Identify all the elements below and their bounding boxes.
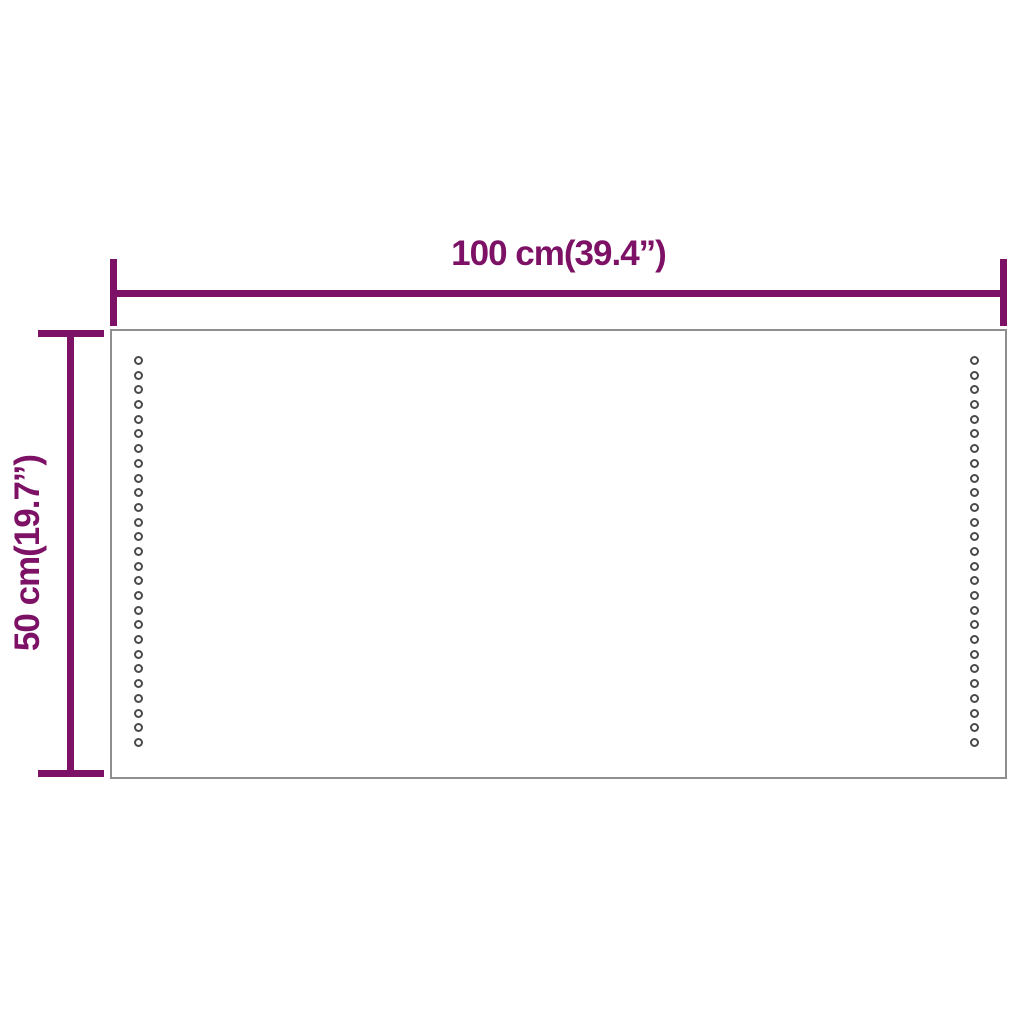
led-dot [970, 415, 979, 424]
led-dot [134, 547, 143, 556]
led-dot [134, 709, 143, 718]
led-dot [970, 635, 979, 644]
led-dot [134, 474, 143, 483]
led-dot [134, 606, 143, 615]
width-dimension-tick-left [110, 259, 117, 326]
led-dot [970, 459, 979, 468]
led-dot [970, 371, 979, 380]
led-dot [134, 444, 143, 453]
led-dot [134, 356, 143, 365]
led-dot [134, 679, 143, 688]
led-dot [970, 518, 979, 527]
led-dot [970, 444, 979, 453]
led-dot [134, 429, 143, 438]
led-dot [134, 576, 143, 585]
led-dot [970, 532, 979, 541]
led-dot [970, 679, 979, 688]
width-dimension-line [110, 290, 1007, 297]
led-dot [134, 503, 143, 512]
led-dot [970, 664, 979, 673]
led-dot [970, 474, 979, 483]
led-dot [134, 400, 143, 409]
led-dot [134, 738, 143, 747]
width-dimension-label: 100 cm(39.4”) [110, 234, 1007, 274]
led-dot [970, 488, 979, 497]
led-dot [134, 532, 143, 541]
led-dot [134, 723, 143, 732]
height-dimension-tick-top [38, 330, 104, 337]
led-dot [970, 694, 979, 703]
led-dot [134, 415, 143, 424]
led-dot [970, 650, 979, 659]
height-dimension-label: 50 cm(19.7”) [8, 455, 48, 651]
led-dot [970, 429, 979, 438]
led-dot [134, 385, 143, 394]
width-dimension-tick-right [1000, 259, 1007, 326]
led-dot [970, 576, 979, 585]
led-dot [970, 738, 979, 747]
led-dot [134, 620, 143, 629]
led-dot [970, 620, 979, 629]
led-dot-column-left [134, 356, 143, 747]
led-dot [970, 723, 979, 732]
height-dimension-line [67, 330, 74, 777]
led-dot [134, 371, 143, 380]
led-dot [134, 664, 143, 673]
led-dot [970, 385, 979, 394]
product-dimension-diagram: 100 cm(39.4”) 50 cm(19.7”) [0, 0, 1024, 1024]
led-dot [970, 547, 979, 556]
led-dot [134, 591, 143, 600]
led-dot [134, 562, 143, 571]
led-dot-column-right [970, 356, 979, 747]
led-dot [970, 591, 979, 600]
led-dot [970, 503, 979, 512]
led-dot [970, 562, 979, 571]
mirror-panel [110, 329, 1007, 779]
led-dot [970, 400, 979, 409]
led-dot [134, 488, 143, 497]
led-dot [134, 650, 143, 659]
height-dimension-tick-bottom [38, 770, 104, 777]
led-dot [134, 635, 143, 644]
led-dot [134, 459, 143, 468]
led-dot [970, 606, 979, 615]
led-dot [970, 709, 979, 718]
led-dot [134, 518, 143, 527]
led-dot [134, 694, 143, 703]
led-dot [970, 356, 979, 365]
